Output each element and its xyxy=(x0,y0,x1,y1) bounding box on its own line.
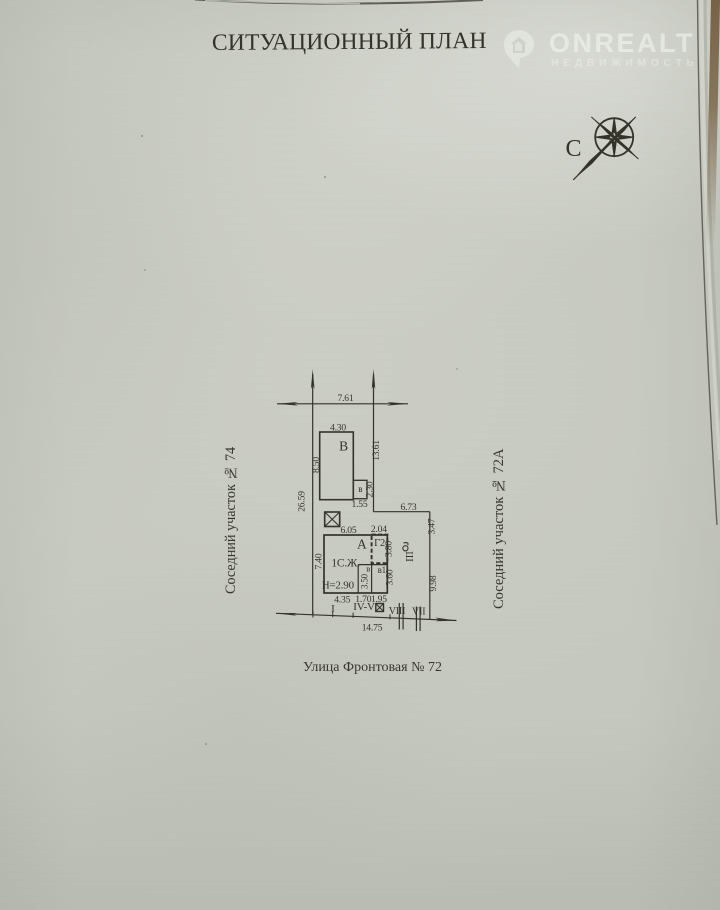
svg-text:Ш: Ш xyxy=(403,551,414,562)
svg-text:Н=2.90: Н=2.90 xyxy=(322,580,355,592)
svg-text:3.47: 3.47 xyxy=(427,518,438,534)
svg-text:7.40: 7.40 xyxy=(313,553,324,569)
svg-text:IV-V: IV-V xyxy=(353,601,375,613)
svg-text:С: С xyxy=(565,136,581,162)
svg-text:1С.Ж.: 1С.Ж. xyxy=(331,558,360,570)
svg-text:2.04: 2.04 xyxy=(371,524,387,535)
svg-text:в: в xyxy=(358,484,362,494)
svg-text:1.55: 1.55 xyxy=(352,499,368,510)
svg-text:4.30: 4.30 xyxy=(330,423,346,434)
svg-text:3.50: 3.50 xyxy=(360,573,370,589)
svg-text:VII: VII xyxy=(412,607,425,618)
svg-text:7.61: 7.61 xyxy=(338,393,354,404)
svg-text:VIII: VIII xyxy=(389,606,405,617)
svg-text:8.50: 8.50 xyxy=(311,457,322,473)
svg-text:2.30: 2.30 xyxy=(364,481,375,497)
svg-text:4.35: 4.35 xyxy=(334,595,350,606)
svg-text:3.60: 3.60 xyxy=(385,569,396,585)
svg-text:14.75: 14.75 xyxy=(362,623,383,634)
svg-text:в: в xyxy=(366,564,370,574)
svg-text:26.59: 26.59 xyxy=(297,491,308,512)
svg-text:6.05: 6.05 xyxy=(341,525,357,536)
svg-text:А: А xyxy=(357,537,367,552)
svg-text:13.61: 13.61 xyxy=(371,440,382,461)
svg-text:В: В xyxy=(339,439,348,454)
svg-text:9.98: 9.98 xyxy=(428,575,439,591)
svg-text:6.73: 6.73 xyxy=(401,502,417,513)
svg-text:I: I xyxy=(331,603,335,615)
svg-text:3.80: 3.80 xyxy=(384,541,395,557)
